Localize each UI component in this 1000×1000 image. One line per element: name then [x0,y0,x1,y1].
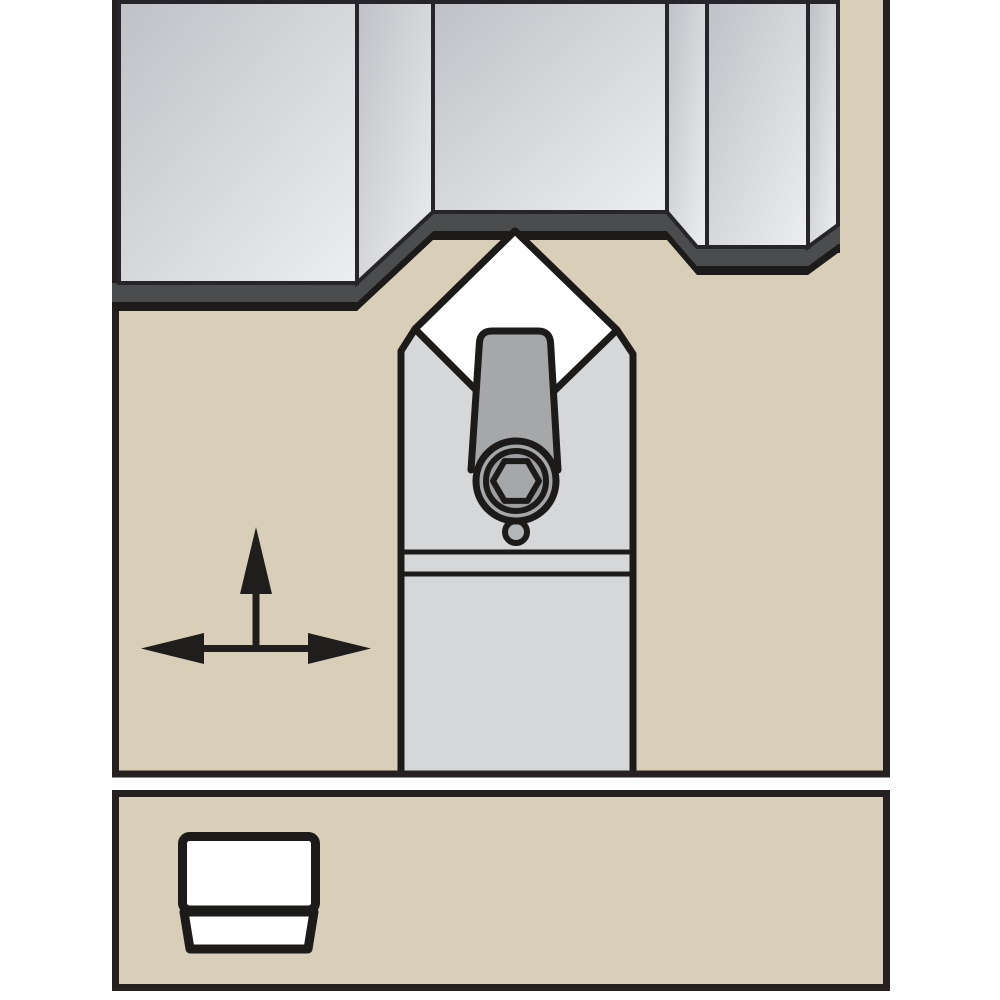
insert-profile-rect [183,837,316,911]
workpiece-section-5 [707,2,808,247]
toolholder-application-diagram [0,0,1000,1000]
upper-panel [112,0,890,774]
workpiece-section-1 [119,2,357,283]
workpiece-section-3 [433,2,667,212]
workpiece-section-6 [808,2,838,247]
toolholder [401,231,633,774]
hex-socket-icon [493,461,539,501]
insert-seat-trapezoid [184,912,314,949]
insert-cross-section-icon [183,837,316,950]
workpiece-section-4 [667,2,707,247]
lower-panel [116,794,887,988]
